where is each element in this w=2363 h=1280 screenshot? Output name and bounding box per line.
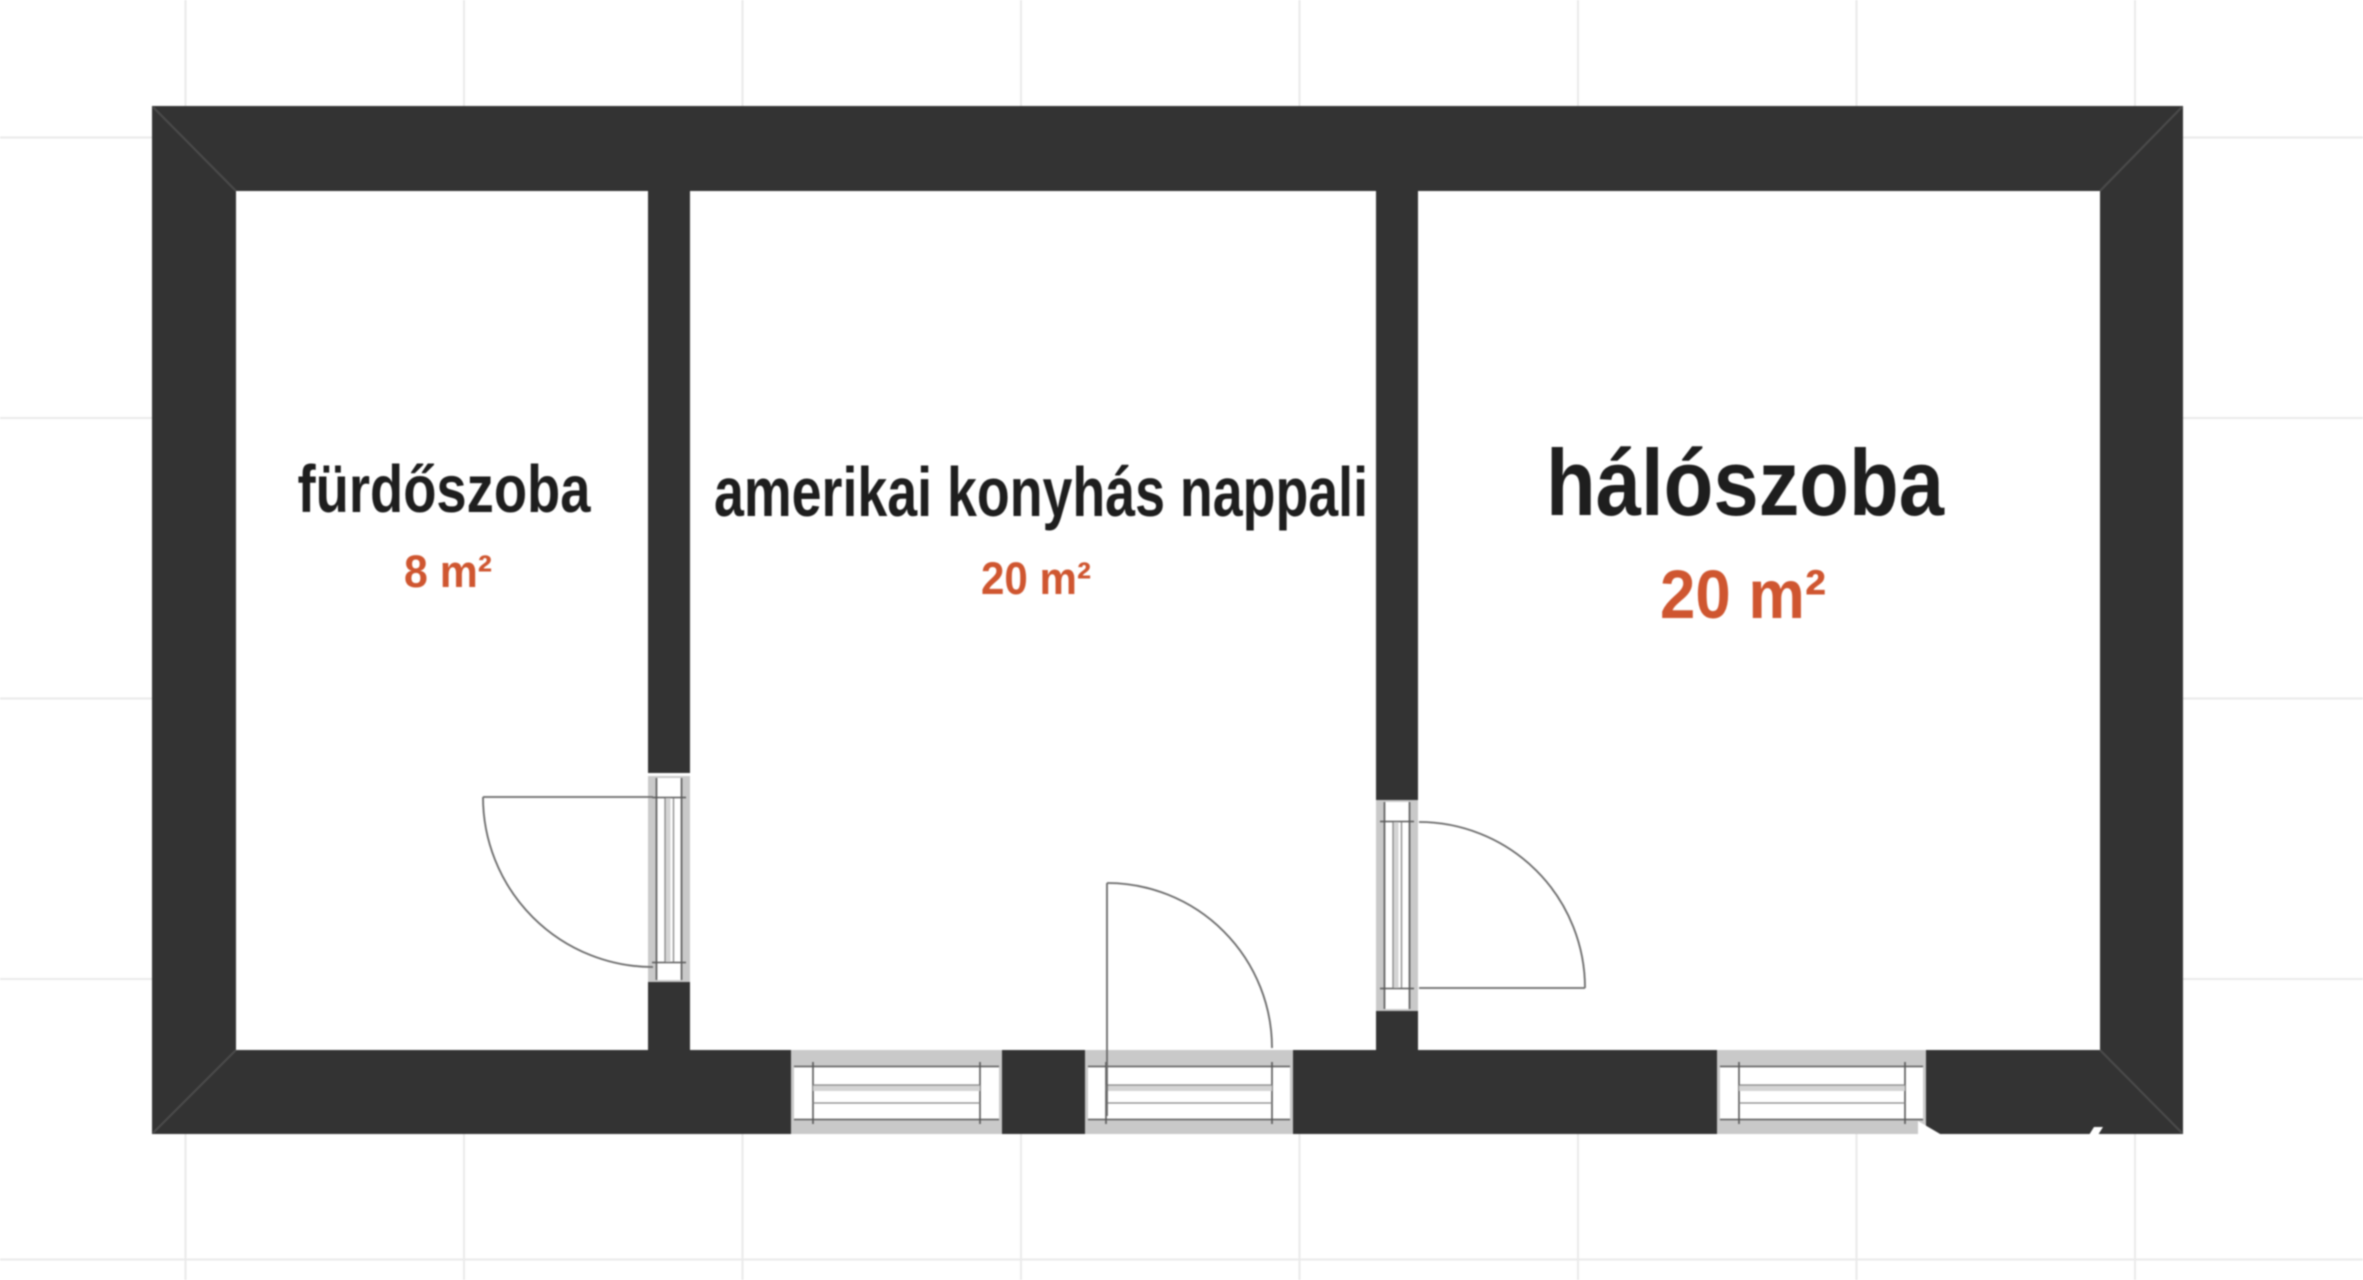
svg-text:fürdőszoba: fürdőszoba <box>298 452 592 527</box>
svg-text:amerikai konyhás nappali: amerikai konyhás nappali <box>714 453 1368 531</box>
svg-text:20 m²: 20 m² <box>1660 556 1826 633</box>
svg-text:8 m²: 8 m² <box>404 546 492 597</box>
svg-text:hálószoba: hálószoba <box>1546 430 1945 535</box>
svg-text:20 m²: 20 m² <box>981 553 1091 604</box>
